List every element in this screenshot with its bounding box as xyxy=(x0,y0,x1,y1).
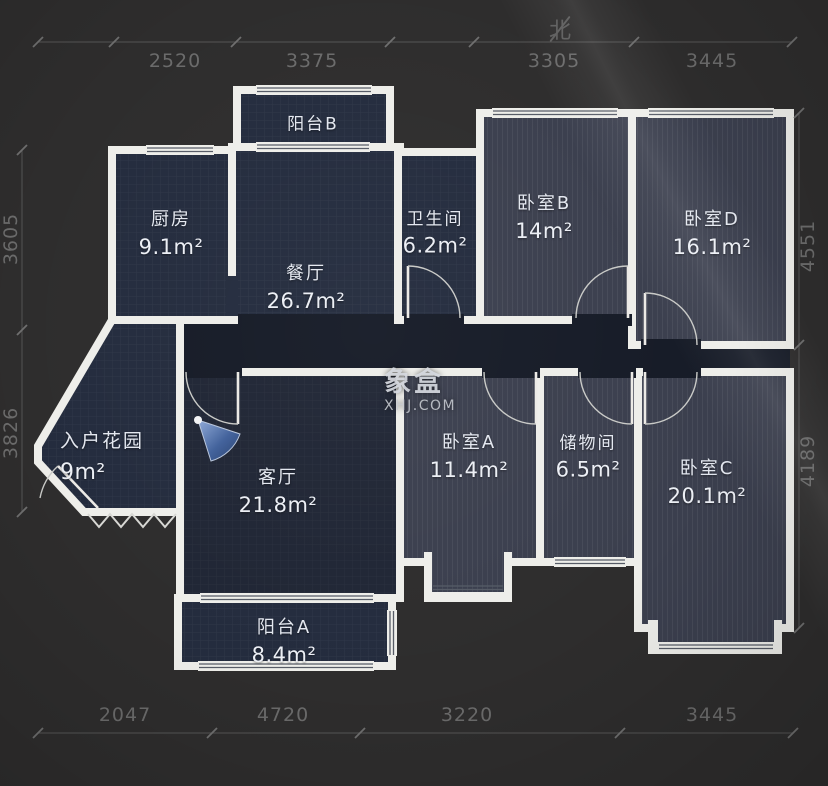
dim-left-1: 3605 xyxy=(0,213,22,265)
dim-bottom-2: 4720 xyxy=(257,704,309,726)
dining-label: 餐厅 26.7m² xyxy=(267,259,346,313)
kitchen-area: 9.1m² xyxy=(139,235,204,259)
bedroom-c-name: 卧室C xyxy=(668,454,747,480)
dim-top-1: 2520 xyxy=(149,50,201,72)
kitchen-name: 厨房 xyxy=(139,205,204,231)
storage-area: 6.5m² xyxy=(556,458,621,482)
balcony-a-name: 阳台A xyxy=(252,613,317,639)
bedroom-c-label: 卧室C 20.1m² xyxy=(668,454,747,508)
bedroom-c-area: 20.1m² xyxy=(668,484,747,508)
dim-left-2: 3826 xyxy=(0,407,22,459)
storage-label: 储物间 6.5m² xyxy=(556,429,621,482)
bathroom-area: 6.2m² xyxy=(403,234,468,258)
bedroom-b-label: 卧室B 14m² xyxy=(515,189,573,243)
dining-name: 餐厅 xyxy=(267,259,346,285)
balcony-b-name: 阳台B xyxy=(287,110,339,135)
bedroom-b-area: 14m² xyxy=(515,219,573,243)
living-label: 客厅 21.8m² xyxy=(239,463,318,517)
bathroom-label: 卫生间 6.2m² xyxy=(403,205,468,258)
bedroom-a-name: 卧室A xyxy=(430,428,509,454)
dining-area: 26.7m² xyxy=(267,289,346,313)
balcony-b-label: 阳台B xyxy=(287,110,339,135)
entrance-garden-name: 入户花园 xyxy=(60,426,144,453)
floor-plan-canvas: 阳台B 厨房 9.1m² 餐厅 26.7m² 卫生间 6.2m² 卧室B 14m… xyxy=(0,0,828,786)
bedroom-a-area: 11.4m² xyxy=(430,458,509,482)
dim-top-2: 3375 xyxy=(286,50,338,72)
watermark-brand: 象盒 xyxy=(384,369,456,396)
dim-bottom-3: 3220 xyxy=(441,704,493,726)
bedroom-a-label: 卧室A 11.4m² xyxy=(430,428,509,482)
dim-right-2: 4189 xyxy=(797,435,819,487)
bedroom-b-name: 卧室B xyxy=(515,189,573,215)
kitchen-label: 厨房 9.1m² xyxy=(139,205,204,259)
balcony-a-label: 阳台A 8.4m² xyxy=(252,613,317,667)
storage-name: 储物间 xyxy=(556,429,621,454)
watermark: 象盒 XHJ.COM xyxy=(384,369,456,413)
watermark-site: XHJ.COM xyxy=(384,399,456,413)
dim-top-3: 3305 xyxy=(528,50,580,72)
entrance-garden-label: 入户花园 9m² xyxy=(60,426,144,485)
living-name: 客厅 xyxy=(239,463,318,489)
entrance-garden-area: 9m² xyxy=(60,460,144,485)
dim-top-4: 3445 xyxy=(686,50,738,72)
dim-bottom-4: 3445 xyxy=(686,704,738,726)
dim-right-1: 4551 xyxy=(797,220,819,272)
living-area: 21.8m² xyxy=(239,493,318,517)
north-indicator: 北 xyxy=(543,12,577,46)
balcony-a-area: 8.4m² xyxy=(252,643,317,667)
bedroom-d-name: 卧室D xyxy=(673,205,752,231)
dim-bottom-1: 2047 xyxy=(99,704,151,726)
bedroom-d-label: 卧室D 16.1m² xyxy=(673,205,752,259)
bathroom-name: 卫生间 xyxy=(403,205,468,230)
bedroom-d-area: 16.1m² xyxy=(673,235,752,259)
